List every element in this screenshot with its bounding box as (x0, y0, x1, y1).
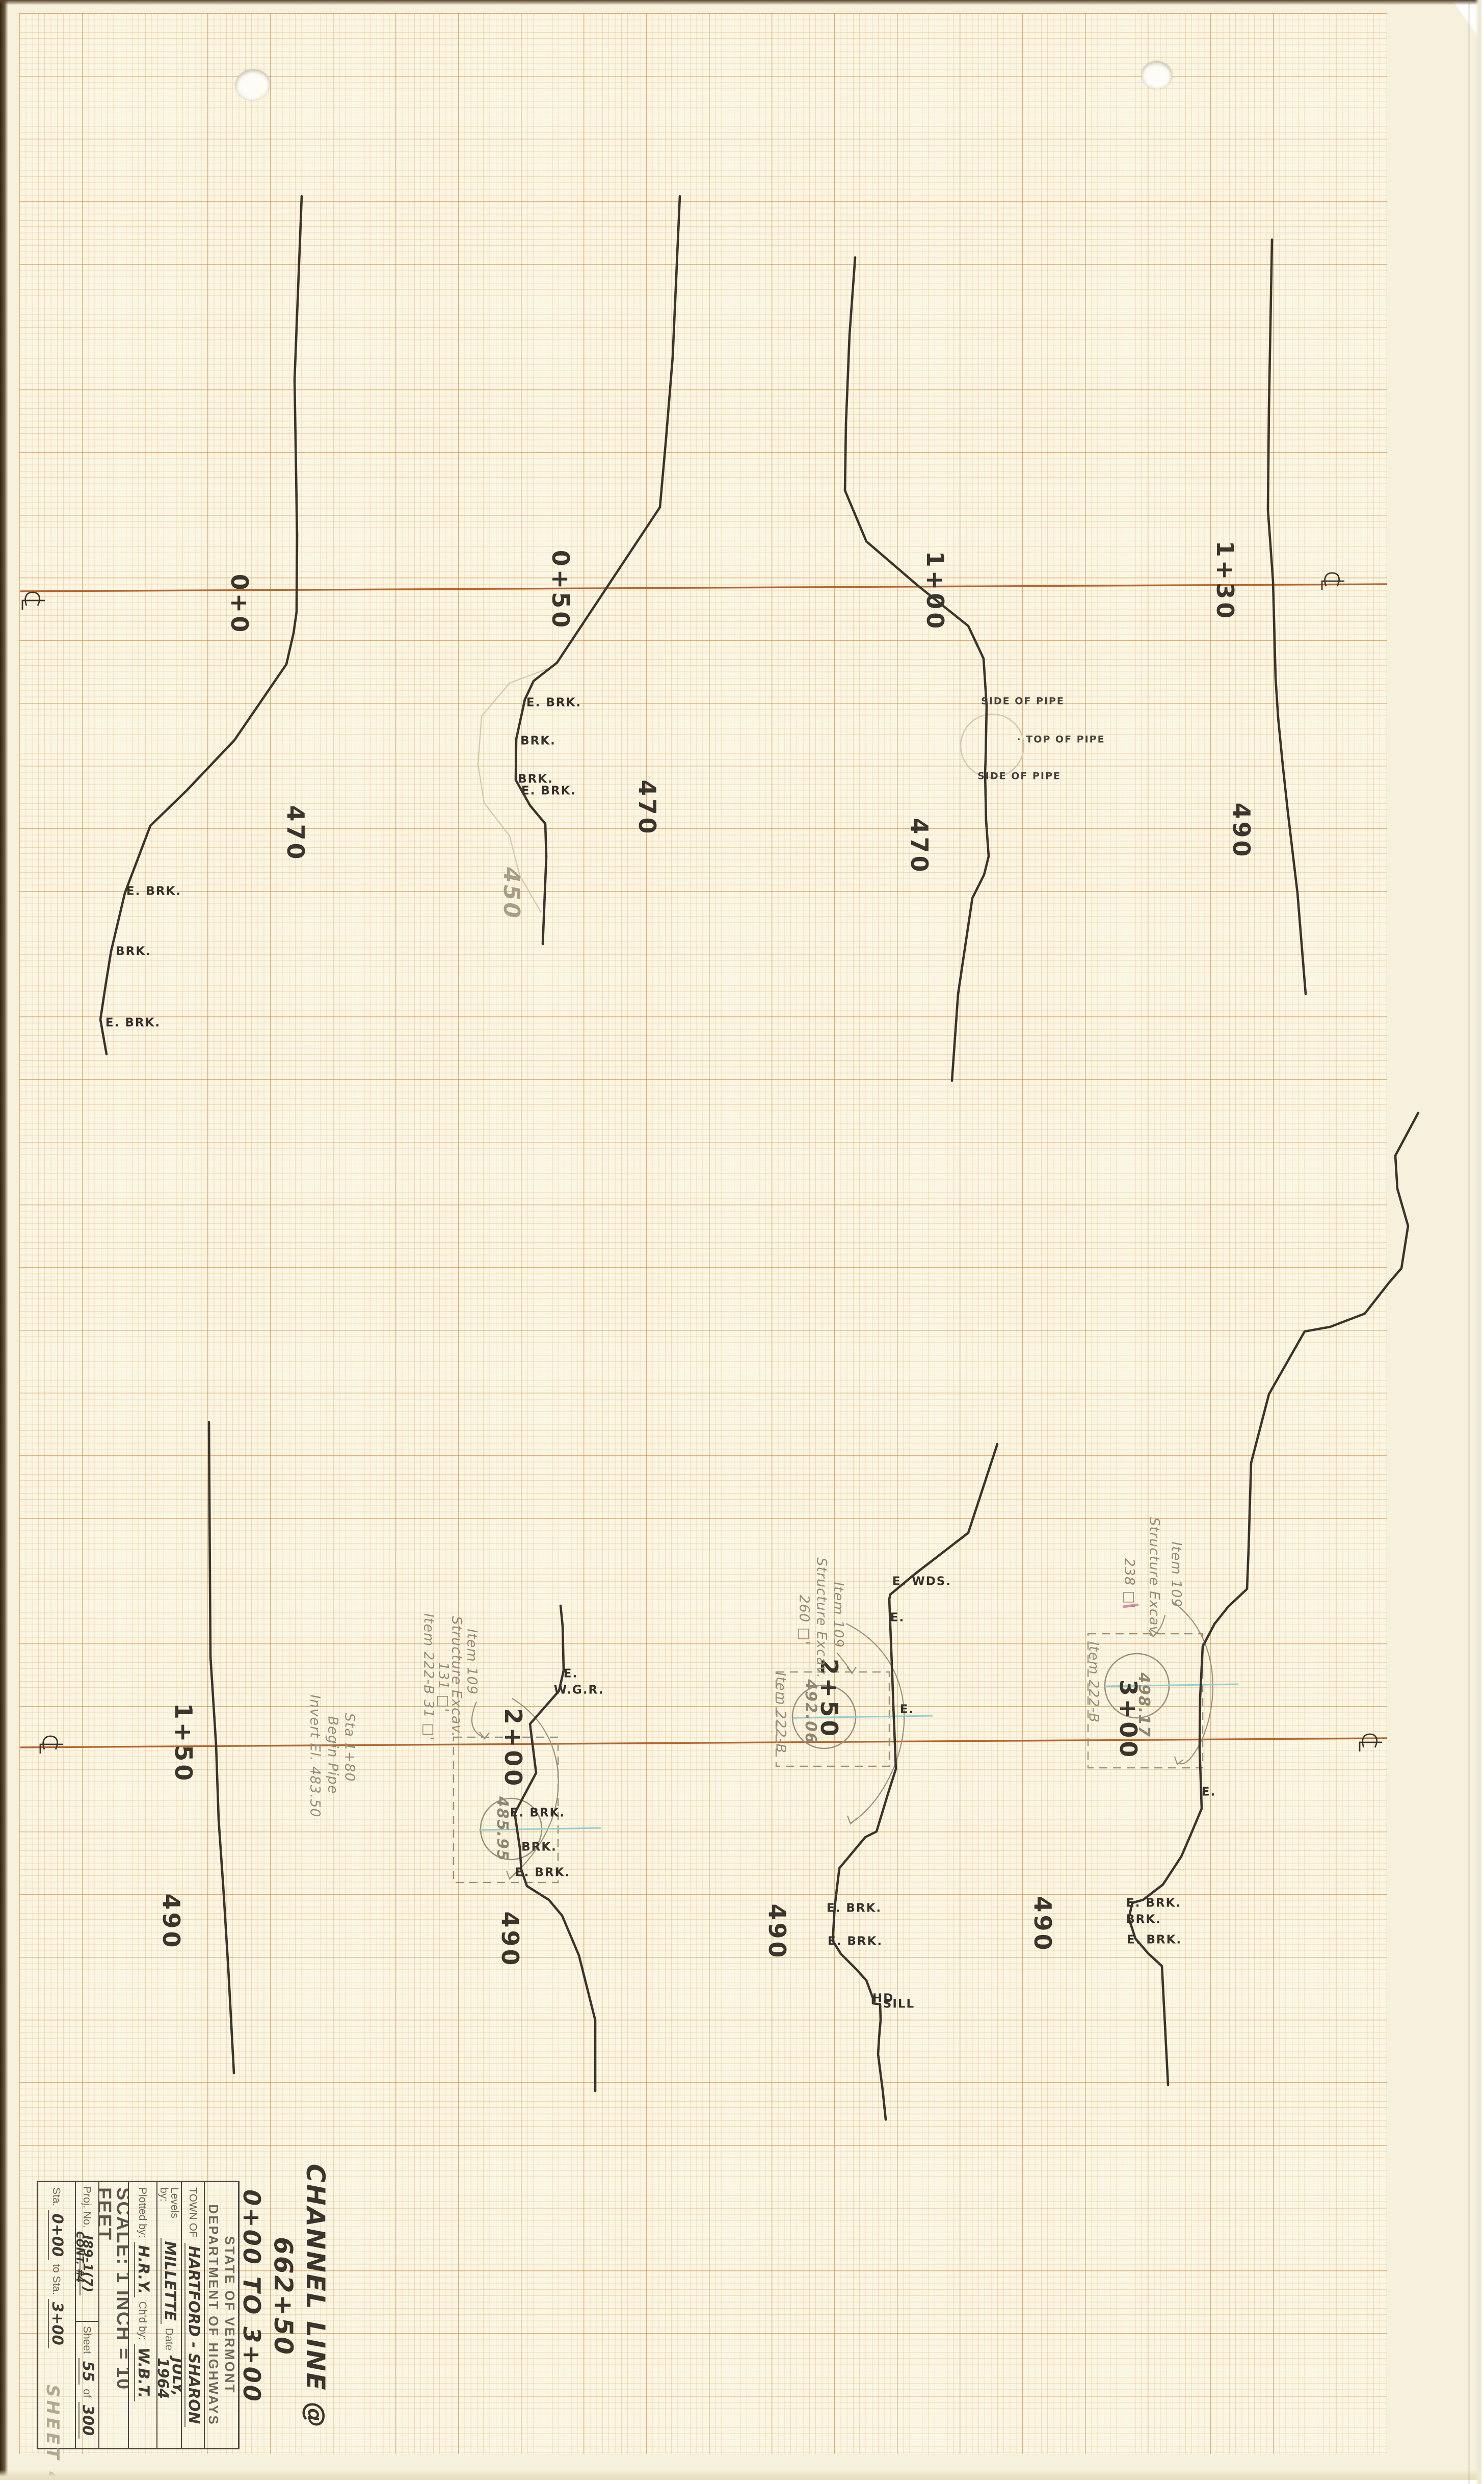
title-block-scale-row: SCALE: 1 INCH = 10 FEET (98, 2182, 128, 2448)
agency-state-text: STATE OF VERMONT (222, 2184, 237, 2446)
station-label-1+30: 1+30 (1213, 541, 1237, 622)
drawing-title-line1: CHANNEL LINE @ 662+50 (268, 2136, 331, 2457)
sheet-number-cell: Sheet 55 of 300 (76, 2321, 98, 2448)
ground-label: BRK. (518, 774, 553, 786)
ground-label: E. BRK. (126, 886, 181, 898)
sheet-of-label: of (82, 2389, 93, 2398)
ground-label: E. (900, 1704, 914, 1716)
pencil-note: Item 222-B (774, 1672, 788, 1754)
drawing-title: CHANNEL LINE @ 662+50 0+00 TO 3+00 (255, 2136, 331, 2457)
pencil-note: Begin Pipe (326, 1716, 340, 1794)
town-label: TOWN OF (188, 2187, 198, 2238)
ground-label: BRK. (520, 736, 556, 747)
ground-label: E. BRK. (521, 786, 576, 797)
pencil-note: Invert El. 483.50 (308, 1694, 322, 1817)
station-label-0+0: 0+0 (228, 574, 251, 636)
title-block-project-row: Proj. No. I89-1(7) CONT. #4 Sheet 55 of … (75, 2182, 98, 2448)
pipe-label: SIDE OF PIPE (977, 772, 1061, 781)
pencil-note: Structure Excav. (450, 1616, 464, 1737)
ground-label: E. BRK. (105, 1017, 161, 1029)
date-value: JULY, 1964 (156, 2355, 181, 2443)
title-block: STATE OF VERMONT DEPARTMENT OF HIGHWAYS … (37, 2181, 240, 2449)
ground-label: E. WDS. (892, 1576, 951, 1588)
levels-by-value: MILLETTE (161, 2238, 178, 2323)
pipe-label: · TOP OF PIPE (1017, 735, 1105, 745)
project-number-label: Proj. No. (82, 2186, 93, 2228)
sheet-number-pencil: SHEET 4 (44, 2385, 61, 2484)
ground-label: SILL (883, 1999, 915, 2010)
scale-text: SCALE: 1 INCH = 10 FEET (98, 2187, 128, 2443)
pencil-note: 131 □' (437, 1662, 450, 1712)
pipe-invert-elevation: 492.06 (803, 1679, 818, 1744)
elevation-label: 490 (1230, 802, 1253, 859)
station-label-1+50: 1+50 (172, 1703, 195, 1784)
ground-label: E. (1202, 1787, 1216, 1798)
station-to-label: to Sta. (51, 2264, 62, 2295)
pencil-note: Item 222-B 31 □' (422, 1613, 436, 1741)
elevation-label: 470 (284, 805, 307, 861)
town-value: HARTFORD - SHARON (184, 2243, 201, 2427)
pencil-note: 238 □' (1123, 1558, 1136, 1608)
sheet-total-value: 300 (79, 2402, 96, 2439)
checked-by-label: Ch'd by: (138, 2302, 148, 2340)
title-block-town-row: TOWN OF HARTFORD - SHARON (181, 2182, 204, 2448)
station-label-1+00: 1+00 (923, 551, 947, 632)
plotted-by-value: H.R.Y. (135, 2242, 151, 2297)
station-from-label: Sta. (51, 2187, 62, 2206)
ground-label: E. BRK. (515, 1867, 570, 1879)
pencil-note: Item 222-B (1087, 1641, 1101, 1723)
pencil-note: Structure Excav. (1148, 1517, 1161, 1638)
elevation-label: 490 (160, 1893, 183, 1950)
pencil-note: 260 □' (798, 1594, 811, 1645)
pencil-note: Structure Excav. (815, 1557, 829, 1679)
scanned-drawing-sheet: 0+00+501+001+301+502+002+503+00470470470… (0, 0, 1484, 2484)
title-block-agency-row: STATE OF VERMONT DEPARTMENT OF HIGHWAYS (204, 2182, 238, 2448)
contract-value: CONT. #4 (75, 2231, 85, 2283)
ground-label: E. BRK. (1127, 1934, 1182, 1946)
agency-dept-text: DEPARTMENT OF HIGHWAYS (206, 2184, 221, 2446)
ground-label: E. BRK. (510, 1808, 565, 1819)
elevation-label-pencil: 450 (500, 867, 522, 920)
plotted-by-label: Plotted by: (138, 2187, 148, 2238)
page-edge-right (1475, 0, 1484, 2484)
ground-label: E. BRK. (827, 1903, 882, 1915)
elevation-label: 490 (498, 1911, 522, 1968)
ground-label: W.G.R. (554, 1685, 604, 1696)
sheet-label: Sheet (82, 2326, 93, 2354)
ground-label: E. (890, 1612, 905, 1624)
checked-by-value: W.B.T. (135, 2344, 151, 2401)
elevation-label: 490 (765, 1903, 789, 1960)
date-label: Date (164, 2328, 175, 2350)
levels-by-label: Levels by: (158, 2187, 180, 2234)
ground-label: E. (564, 1668, 578, 1680)
page-edge-bottom (0, 2470, 1484, 2484)
station-label-0+50: 0+50 (549, 550, 572, 631)
page-edge-top (0, 0, 1484, 5)
station-to-value: 3+00 (48, 2299, 65, 2348)
page-crease (1468, 0, 1470, 2484)
page-edge-left (0, 0, 8, 2484)
pencil-note: Item 109 (832, 1582, 845, 1648)
pipe-label: SIDE OF PIPE (981, 697, 1065, 707)
ground-label: BRK. (116, 946, 151, 958)
sheet-value: 55 (79, 2358, 96, 2385)
ground-label: BRK. (521, 1842, 557, 1853)
pencil-note: Item 109 (465, 1629, 479, 1695)
station-label-2+00: 2+00 (501, 1708, 525, 1789)
station-from-value: 0+00 (48, 2210, 65, 2260)
pipe-invert-elevation: 485.95 (494, 1796, 510, 1862)
title-block-plotted-row: Plotted by: H.R.Y. Ch'd by: W.B.T. (128, 2182, 156, 2448)
project-number-cell: Proj. No. I89-1(7) CONT. #4 (76, 2182, 98, 2321)
elevation-label: 470 (908, 818, 931, 874)
elevation-label: 490 (1031, 1896, 1054, 1952)
annotation-layer: 0+00+501+001+301+502+002+503+00470470470… (0, 0, 1484, 2484)
elevation-label: 470 (635, 779, 659, 836)
ground-label: E. BRK. (1126, 1898, 1181, 1910)
pencil-note: Item 109 (1170, 1541, 1183, 1608)
title-block-levels-row: Levels by: MILLETTE Date JULY, 1964 (156, 2182, 181, 2448)
ground-label: E. BRK. (526, 697, 581, 709)
pencil-note: Sta 1+80 (343, 1713, 357, 1782)
drawing-title-line2: 0+00 TO 3+00 (236, 2136, 268, 2457)
ground-label: E. BRK. (828, 1936, 883, 1948)
ground-label: BRK. (1126, 1914, 1161, 1926)
pipe-invert-elevation: 498.17 (1136, 1672, 1151, 1738)
